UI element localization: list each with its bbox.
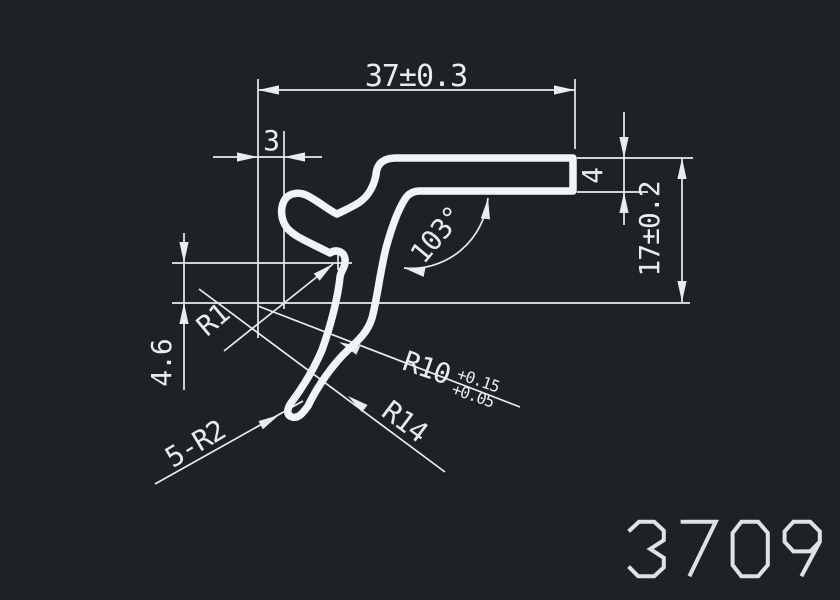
cad-viewport: 37±0.3 3 4 17±0.2 4.6 103° R1 R10 +0.15 … [0, 0, 840, 600]
dim-left-height-label: 4.6 [145, 339, 178, 387]
cad-drawing-canvas: 37±0.3 3 4 17±0.2 4.6 103° R1 R10 +0.15 … [0, 0, 840, 600]
dim-top-width-label: 37±0.3 [365, 59, 467, 94]
dim-left-offset-label: 3 [263, 124, 279, 157]
dim-right-height-label: 17±0.2 [633, 181, 666, 276]
dim-right-thickness-label: 4 [576, 168, 609, 184]
